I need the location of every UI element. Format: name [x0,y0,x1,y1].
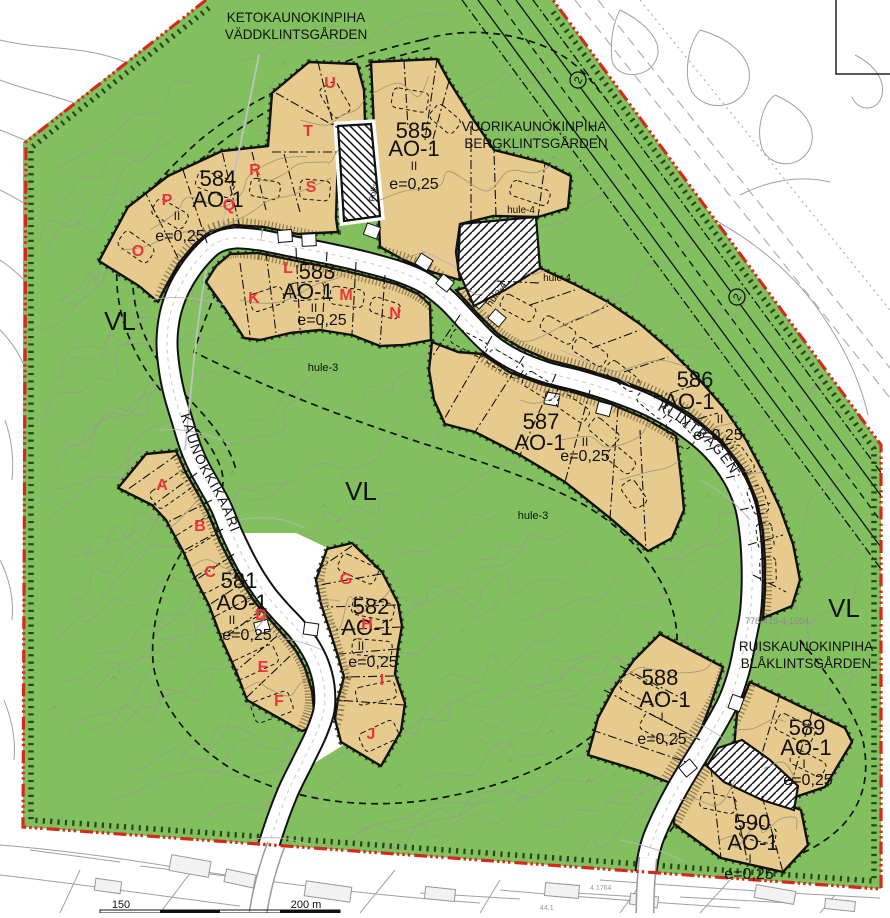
svg-text:e=0,25: e=0,25 [724,866,773,883]
svg-text:K: K [248,290,260,307]
svg-text:VL: VL [104,306,136,336]
svg-text:150: 150 [112,899,130,911]
svg-text:P: P [162,192,173,209]
svg-text:VL: VL [345,476,377,506]
svg-text:44.1: 44.1 [540,905,554,912]
svg-text:e=0,25: e=0,25 [693,427,742,444]
svg-text:e=0,25: e=0,25 [297,312,346,329]
svg-text:C: C [204,564,216,581]
svg-text:II: II [582,435,589,449]
svg-text:AO-1: AO-1 [639,687,690,712]
svg-text:I: I [380,672,384,689]
svg-text:L: L [283,260,293,277]
svg-text:hule-4: hule-4 [543,273,571,284]
svg-text:e=0,25: e=0,25 [783,772,832,789]
svg-text:O: O [132,243,144,260]
svg-text:E: E [258,659,269,676]
svg-text:4.1764: 4.1764 [590,885,612,892]
svg-text:AO-1: AO-1 [663,389,714,414]
svg-text:F: F [274,693,284,710]
svg-text:II: II [717,412,724,426]
svg-text:B: B [194,518,206,535]
svg-text:J: J [367,726,376,743]
svg-text:e=0,25: e=0,25 [389,176,438,193]
svg-text:hule-3: hule-3 [308,362,339,374]
svg-text:AO-1: AO-1 [727,830,778,855]
svg-text:VUORIKAUNOKINPIHA: VUORIKAUNOKINPIHA [462,119,607,134]
svg-text:S: S [306,179,317,196]
svg-text:e=0,25: e=0,25 [348,654,397,671]
svg-text:II: II [174,209,181,223]
svg-text:AO-1: AO-1 [192,187,243,212]
svg-text:II: II [229,613,236,627]
svg-text:II: II [411,159,418,173]
svg-text:hule-4: hule-4 [507,205,535,216]
svg-text:M: M [339,287,352,304]
svg-text:KETOKAUNOKINPIHA: KETOKAUNOKINPIHA [227,10,366,25]
svg-text:BERGKLINTSGÅRDEN: BERGKLINTSGÅRDEN [464,136,607,151]
svg-text:BLÅKLINTSGÅRDEN: BLÅKLINTSGÅRDEN [741,656,872,671]
svg-text:AO-1: AO-1 [282,279,333,304]
svg-text:RUISKAUNOKINPIHA: RUISKAUNOKINPIHA [739,639,873,654]
svg-text:e=0,25: e=0,25 [222,627,271,644]
svg-text:AO-1: AO-1 [388,136,439,161]
svg-text:I: I [802,757,805,771]
svg-text:A: A [156,477,168,494]
svg-text:II: II [358,639,365,653]
svg-text:H: H [361,616,373,633]
svg-text:Q: Q [223,197,235,214]
svg-text:200 m: 200 m [291,899,322,911]
svg-text:AO-1: AO-1 [780,735,831,760]
svg-text:hule-3: hule-3 [518,510,549,522]
svg-text:e=0,25: e=0,25 [560,448,609,465]
svg-text:e=0,25: e=0,25 [637,731,686,748]
svg-text:e=0,25: e=0,25 [155,228,204,245]
svg-text:VÄDDKLINTSGÅRDEN: VÄDDKLINTSGÅRDEN [225,27,368,42]
svg-text:778-419-4-1604: 778-419-4-1604 [745,616,809,626]
svg-text:U: U [324,75,336,92]
svg-text:D: D [255,607,267,624]
svg-text:AO-1: AO-1 [514,430,565,455]
svg-text:N: N [389,305,401,322]
svg-text:I: I [748,852,751,866]
svg-text:G: G [340,571,352,588]
svg-text:I: I [660,710,663,724]
svg-text:T: T [303,123,313,140]
svg-text:VL: VL [828,593,860,623]
svg-text:R: R [249,162,261,179]
